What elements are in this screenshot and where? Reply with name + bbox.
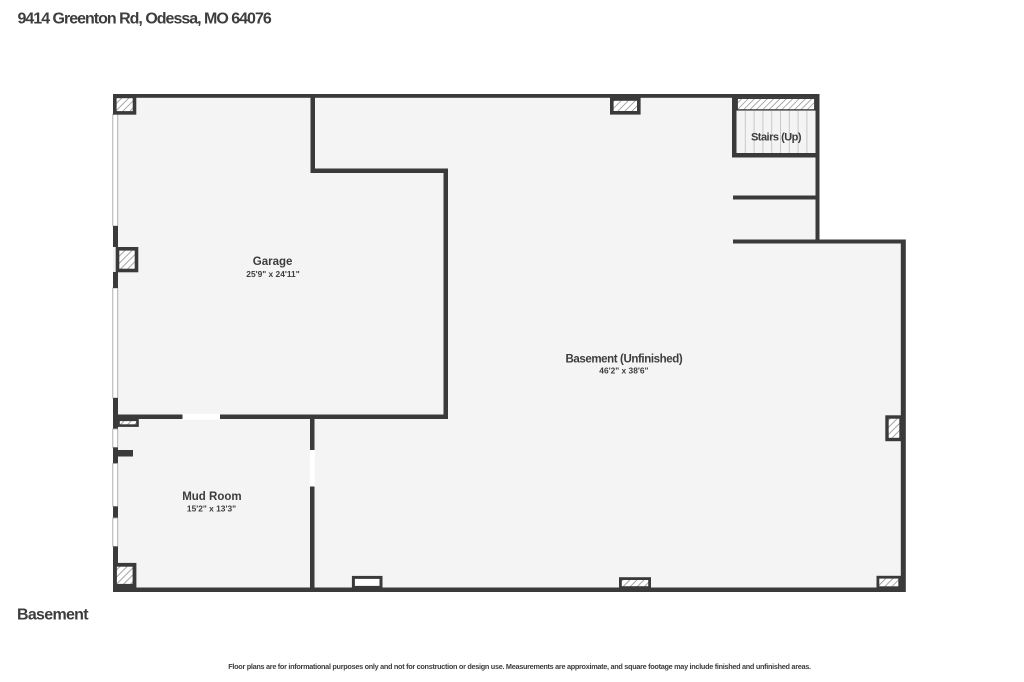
svg-text:46'2" x 38'6": 46'2" x 38'6" (599, 366, 648, 376)
svg-text:Basement (Unfinished): Basement (Unfinished) (565, 354, 682, 366)
svg-text:9414 Greenton Rd, Odessa, MO 6: 9414 Greenton Rd, Odessa, MO 64076 (18, 11, 272, 28)
svg-text:Mud Room: Mud Room (182, 491, 241, 503)
svg-text:Stairs (Up): Stairs (Up) (751, 132, 802, 144)
svg-text:15'2" x 13'3": 15'2" x 13'3" (187, 504, 236, 514)
svg-text:Garage: Garage (253, 256, 293, 268)
svg-text:Floor plans are for informatio: Floor plans are for informational purpos… (228, 662, 811, 671)
svg-text:25'9" x 24'11": 25'9" x 24'11" (246, 269, 299, 279)
svg-text:Basement: Basement (17, 607, 89, 624)
